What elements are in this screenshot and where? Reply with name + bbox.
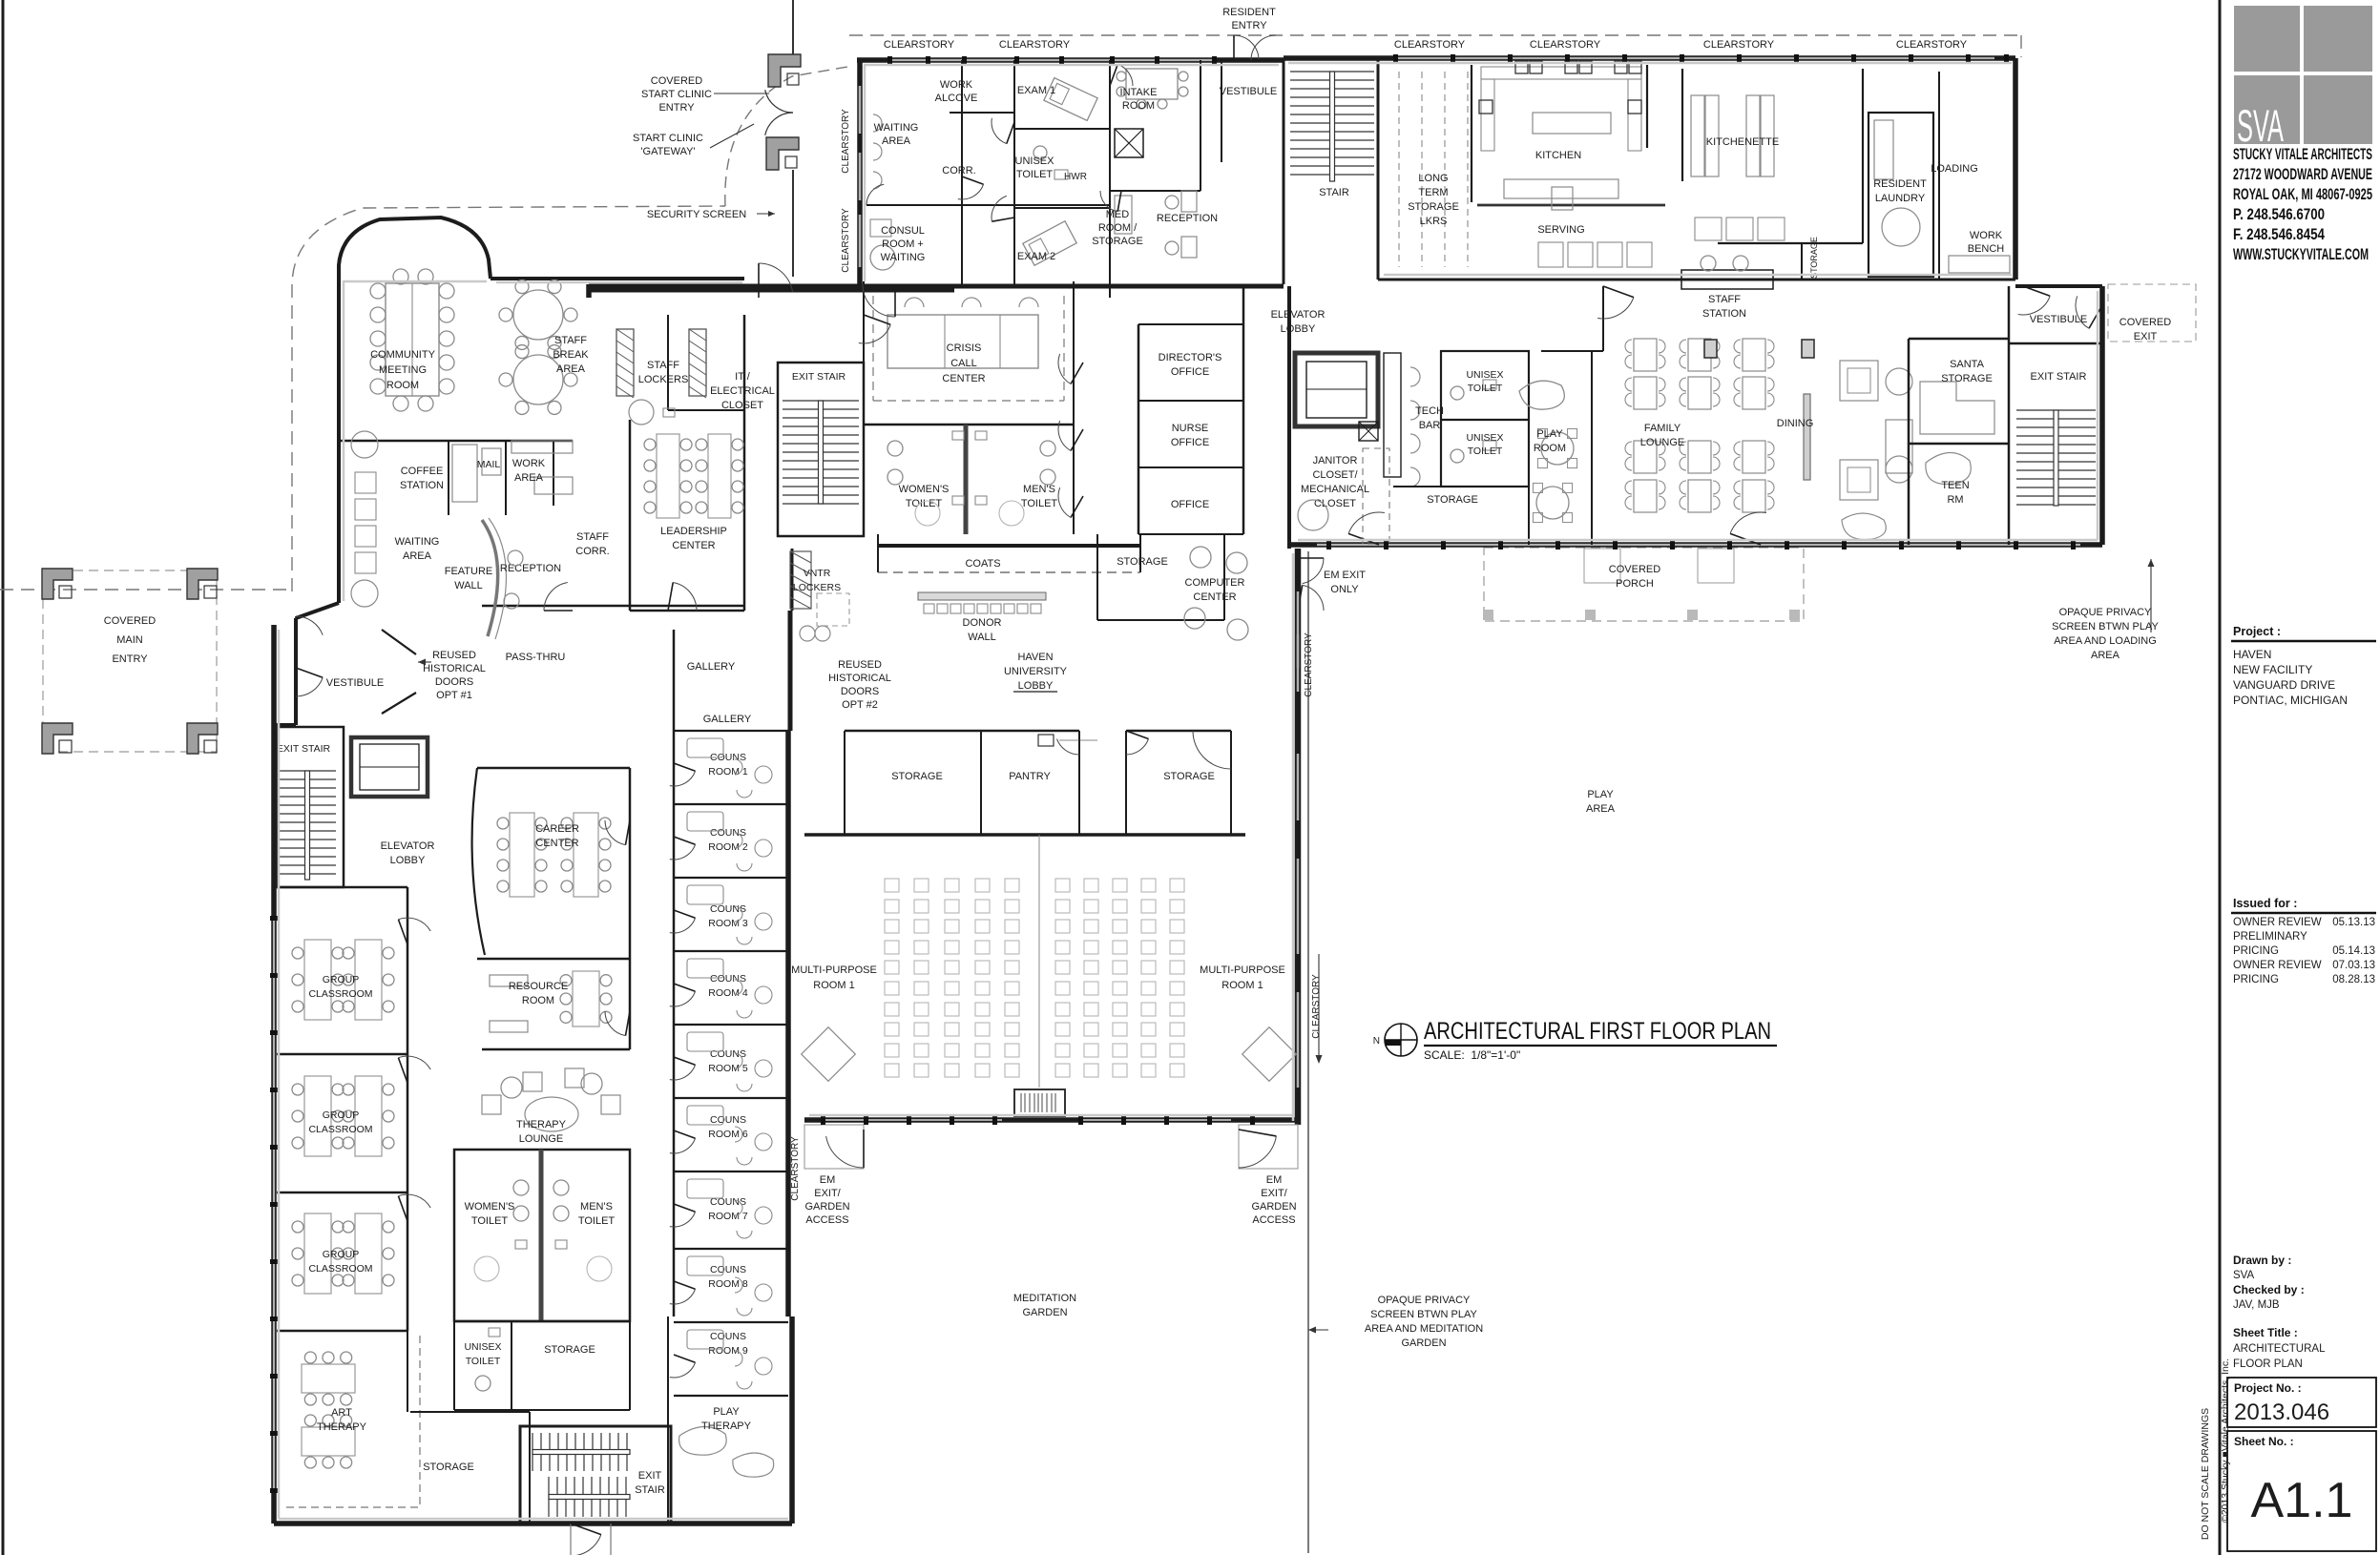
svg-text:STAFF: STAFF <box>554 335 587 346</box>
svg-text:JANITOR: JANITOR <box>1313 455 1358 466</box>
svg-text:CLEARSTORY: CLEARSTORY <box>1896 39 1968 51</box>
svg-text:REUSED: REUSED <box>432 650 476 661</box>
svg-text:EXIT/: EXIT/ <box>814 1188 841 1199</box>
svg-text:VNTR: VNTR <box>804 568 831 579</box>
svg-text:AREA: AREA <box>2091 650 2120 661</box>
svg-text:ROOM: ROOM <box>1534 443 1566 454</box>
svg-text:CLASSROOM: CLASSROOM <box>308 1124 372 1135</box>
svg-text:CLEARSTORY: CLEARSTORY <box>790 1136 801 1201</box>
svg-text:STATION: STATION <box>400 480 444 491</box>
svg-text:STORAGE: STORAGE <box>1427 494 1478 506</box>
svg-text:STORAGE: STORAGE <box>1092 236 1143 247</box>
svg-text:ALCOVE: ALCOVE <box>935 93 978 104</box>
svg-text:FAMILY: FAMILY <box>1644 423 1681 434</box>
svg-text:TEEN: TEEN <box>1941 480 1969 491</box>
svg-text:JAV, MJB: JAV, MJB <box>2233 1299 2280 1311</box>
svg-text:ROOM +: ROOM + <box>882 238 924 250</box>
svg-text:COUNS: COUNS <box>710 1114 746 1126</box>
svg-text:LKRS: LKRS <box>1420 216 1448 227</box>
svg-text:CONSUL: CONSUL <box>881 225 925 237</box>
svg-text:CLEARSTORY: CLEARSTORY <box>841 109 851 174</box>
svg-text:DOORS: DOORS <box>435 676 473 688</box>
svg-text:DO NOT SCALE DRAWINGS: DO NOT SCALE DRAWINGS <box>2200 1408 2211 1540</box>
svg-text:CLEARSTORY: CLEARSTORY <box>884 39 955 51</box>
svg-text:REUSED: REUSED <box>838 659 882 671</box>
svg-text:TOILET: TOILET <box>471 1215 509 1227</box>
svg-text:MULTI-PURPOSE: MULTI-PURPOSE <box>1200 964 1285 976</box>
svg-text:2013.046: 2013.046 <box>2234 1399 2329 1425</box>
svg-text:CLEARSTORY: CLEARSTORY <box>1530 39 1601 51</box>
svg-text:INTAKE: INTAKE <box>1120 87 1158 98</box>
svg-text:STORAGE: STORAGE <box>891 771 943 782</box>
svg-text:Sheet Title :: Sheet Title : <box>2233 1326 2298 1339</box>
svg-text:CLEARSTORY: CLEARSTORY <box>1311 974 1322 1039</box>
svg-text:COUNS: COUNS <box>710 1264 746 1275</box>
svg-text:P. 248.546.6700: P. 248.546.6700 <box>2233 206 2325 223</box>
svg-text:SCREEN BTWN PLAY: SCREEN BTWN PLAY <box>1370 1309 1477 1320</box>
svg-text:WOMEN'S: WOMEN'S <box>899 484 950 495</box>
svg-text:CENTER: CENTER <box>672 540 715 551</box>
svg-text:ONLY: ONLY <box>1330 584 1359 595</box>
svg-text:THERAPY: THERAPY <box>317 1421 367 1433</box>
svg-text:FLOOR PLAN: FLOOR PLAN <box>2233 1358 2303 1370</box>
svg-text:ELEVATOR: ELEVATOR <box>1271 309 1326 321</box>
svg-text:UNISEX: UNISEX <box>1466 432 1503 444</box>
svg-text:SERVING: SERVING <box>1537 224 1584 236</box>
svg-text:WORK: WORK <box>1970 230 2003 241</box>
svg-text:F. 248.546.8454: F. 248.546.8454 <box>2233 226 2326 243</box>
svg-text:07.03.13: 07.03.13 <box>2332 960 2375 971</box>
svg-text:LOBBY: LOBBY <box>390 855 426 866</box>
svg-text:Sheet No. :: Sheet No. : <box>2234 1435 2294 1448</box>
svg-text:CENTER: CENTER <box>942 373 985 384</box>
svg-text:PLAY: PLAY <box>1587 789 1614 800</box>
svg-text:WWW.STUCKYVITALE.COM: WWW.STUCKYVITALE.COM <box>2233 246 2369 263</box>
svg-text:CALL: CALL <box>950 358 977 369</box>
svg-text:ROOM: ROOM <box>386 380 419 391</box>
svg-text:OWNER REVIEW: OWNER REVIEW <box>2233 960 2322 971</box>
svg-text:DONOR: DONOR <box>963 617 1002 629</box>
svg-text:STAIR: STAIR <box>1319 187 1349 198</box>
svg-text:COFFEE: COFFEE <box>401 466 444 477</box>
svg-text:MEN'S: MEN'S <box>580 1201 613 1213</box>
svg-text:Issued for :: Issued for : <box>2233 897 2297 910</box>
svg-text:COUNS: COUNS <box>710 827 746 839</box>
svg-text:SANTA: SANTA <box>1950 359 1985 370</box>
svg-text:LOBBY: LOBBY <box>1018 680 1054 692</box>
svg-text:OPT #1: OPT #1 <box>436 690 472 701</box>
svg-text:PLAY: PLAY <box>1536 428 1563 440</box>
svg-text:VESTIBULE: VESTIBULE <box>2030 314 2088 325</box>
svg-text:PRICING: PRICING <box>2233 945 2279 957</box>
svg-text:ARCHITECTURAL FIRST FLOOR PLAN: ARCHITECTURAL FIRST FLOOR PLAN <box>1424 1018 1771 1045</box>
svg-text:OWNER REVIEW: OWNER REVIEW <box>2233 917 2322 928</box>
svg-text:TOILET: TOILET <box>466 1356 501 1367</box>
svg-text:HWR: HWR <box>1064 172 1087 182</box>
svg-text:CLOSET/: CLOSET/ <box>1312 469 1358 481</box>
svg-text:TECH: TECH <box>1415 405 1444 417</box>
svg-text:CLEARSTORY: CLEARSTORY <box>841 208 851 273</box>
svg-text:27172 WOODWARD AVENUE: 27172 WOODWARD AVENUE <box>2233 166 2372 183</box>
svg-text:OFFICE: OFFICE <box>1171 366 1209 378</box>
svg-text:ROOM /: ROOM / <box>1098 222 1138 234</box>
svg-text:RESIDENT: RESIDENT <box>1222 7 1276 18</box>
svg-text:CAREER: CAREER <box>535 823 579 835</box>
svg-text:ENTRY: ENTRY <box>658 102 695 114</box>
svg-text:PLAY: PLAY <box>713 1406 740 1418</box>
svg-text:STORAGE: STORAGE <box>1408 201 1459 213</box>
svg-text:VESTIBULE: VESTIBULE <box>1220 86 1278 97</box>
svg-text:LOCKERS: LOCKERS <box>793 582 841 593</box>
svg-text:ART: ART <box>331 1407 352 1419</box>
svg-text:HISTORICAL: HISTORICAL <box>828 673 891 684</box>
svg-text:CLEARSTORY: CLEARSTORY <box>1304 632 1314 697</box>
svg-text:COMPUTER: COMPUTER <box>1185 577 1245 589</box>
svg-text:ARCHITECTURAL: ARCHITECTURAL <box>2233 1343 2326 1355</box>
svg-text:PRICING: PRICING <box>2233 974 2279 985</box>
svg-text:EXIT STAIR: EXIT STAIR <box>792 371 846 383</box>
svg-text:STORAGE: STORAGE <box>1117 556 1168 568</box>
svg-text:LOUNGE: LOUNGE <box>519 1133 563 1145</box>
svg-text:PRELIMINARY: PRELIMINARY <box>2233 931 2307 943</box>
svg-text:AREA: AREA <box>1586 803 1616 815</box>
svg-text:GROUP: GROUP <box>323 974 360 985</box>
svg-text:MEETING: MEETING <box>379 364 427 376</box>
svg-text:©2013 Stucky ■Vitale Architect: ©2013 Stucky ■Vitale Architects, Inc. <box>2220 1358 2231 1523</box>
svg-text:START CLINIC: START CLINIC <box>641 89 712 100</box>
svg-text:COVERED: COVERED <box>2119 317 2171 328</box>
svg-text:COMMUNITY: COMMUNITY <box>370 349 435 361</box>
svg-text:ROOM 7: ROOM 7 <box>708 1211 748 1222</box>
svg-text:STAFF: STAFF <box>647 360 679 371</box>
svg-text:EXAM 2: EXAM 2 <box>1017 251 1055 262</box>
svg-text:STORAGE: STORAGE <box>1809 237 1819 279</box>
svg-text:GARDEN: GARDEN <box>1022 1307 1067 1318</box>
svg-text:CLASSROOM: CLASSROOM <box>308 1263 372 1275</box>
svg-text:AREA: AREA <box>403 550 432 562</box>
svg-text:STAFF: STAFF <box>1708 294 1741 305</box>
svg-text:LAUNDRY: LAUNDRY <box>1875 193 1926 204</box>
svg-text:BENCH: BENCH <box>1968 243 2005 255</box>
svg-text:RECEPTION: RECEPTION <box>500 563 561 574</box>
svg-text:STUCKY VITALE ARCHITECTS: STUCKY VITALE ARCHITECTS <box>2233 146 2372 163</box>
svg-text:NEW FACILITY: NEW FACILITY <box>2233 663 2312 676</box>
svg-text:COVERED: COVERED <box>104 615 156 627</box>
svg-text:UNISEX: UNISEX <box>464 1341 501 1353</box>
svg-text:MECHANICAL: MECHANICAL <box>1301 484 1369 495</box>
svg-text:CLEARSTORY: CLEARSTORY <box>999 39 1071 51</box>
svg-text:HAVEN: HAVEN <box>2233 648 2271 661</box>
svg-text:MEDITATION: MEDITATION <box>1013 1293 1076 1304</box>
svg-text:STORAGE: STORAGE <box>1941 373 1993 384</box>
svg-text:WORK: WORK <box>940 79 973 91</box>
svg-text:WALL: WALL <box>968 632 996 643</box>
svg-text:CRISIS: CRISIS <box>947 342 982 354</box>
svg-text:VANGUARD DRIVE: VANGUARD DRIVE <box>2233 678 2335 692</box>
svg-text:GROUP: GROUP <box>323 1109 360 1121</box>
svg-text:TOILET: TOILET <box>906 498 943 509</box>
svg-text:BREAK: BREAK <box>553 349 589 361</box>
svg-text:EXIT: EXIT <box>2134 331 2158 342</box>
svg-text:DOORS: DOORS <box>841 686 879 697</box>
svg-text:EXIT: EXIT <box>638 1470 662 1482</box>
svg-text:Checked by :: Checked by : <box>2233 1283 2305 1296</box>
svg-text:OPT #2: OPT #2 <box>842 699 878 711</box>
svg-text:STORAGE: STORAGE <box>1163 771 1215 782</box>
svg-text:TOILET: TOILET <box>1016 169 1054 180</box>
svg-text:05.14.13: 05.14.13 <box>2332 945 2375 957</box>
svg-text:KITCHEN: KITCHEN <box>1535 150 1581 161</box>
svg-text:UNISEX: UNISEX <box>1015 155 1055 167</box>
svg-text:PONTIAC, MICHIGAN: PONTIAC, MICHIGAN <box>2233 694 2348 707</box>
svg-text:STORAGE: STORAGE <box>423 1462 474 1473</box>
svg-text:ENTRY: ENTRY <box>1231 20 1267 31</box>
svg-text:LOBBY: LOBBY <box>1281 323 1316 335</box>
svg-text:SCREEN BTWN PLAY: SCREEN BTWN PLAY <box>2052 621 2159 632</box>
svg-text:WORK: WORK <box>512 458 546 469</box>
svg-text:SVA: SVA <box>2237 100 2284 151</box>
svg-text:OFFICE: OFFICE <box>1171 437 1209 448</box>
svg-text:NURSE: NURSE <box>1172 423 1209 434</box>
svg-text:MAIL: MAIL <box>477 459 501 470</box>
svg-text:LONG: LONG <box>1418 173 1448 184</box>
svg-text:SCALE: 1/8"=1'-0": SCALE: 1/8"=1'-0" <box>1424 1048 1520 1062</box>
svg-text:A1.1: A1.1 <box>2251 1473 2353 1528</box>
svg-text:TOILET: TOILET <box>1468 383 1503 394</box>
svg-text:ACCESS: ACCESS <box>805 1214 848 1226</box>
svg-text:ELECTRICAL: ELECTRICAL <box>710 385 775 397</box>
svg-text:WAITING: WAITING <box>395 536 440 548</box>
svg-text:AREA AND LOADING: AREA AND LOADING <box>2054 635 2157 647</box>
svg-text:COATS: COATS <box>965 558 1000 570</box>
svg-text:LOCKERS: LOCKERS <box>638 374 689 385</box>
svg-text:THERAPY: THERAPY <box>516 1119 567 1130</box>
svg-text:TOILET: TOILET <box>1021 498 1058 509</box>
svg-text:SECURITY SCREEN: SECURITY SCREEN <box>647 209 746 220</box>
svg-text:AREA AND MEDITATION: AREA AND MEDITATION <box>1365 1323 1483 1335</box>
svg-text:WAITING: WAITING <box>881 252 926 263</box>
svg-text:OPAQUE PRIVACY: OPAQUE PRIVACY <box>1378 1295 1471 1306</box>
svg-text:COVERED: COVERED <box>1609 564 1660 575</box>
svg-text:EXIT/: EXIT/ <box>1261 1188 1287 1199</box>
svg-text:STORAGE: STORAGE <box>544 1344 595 1356</box>
svg-text:ENTRY: ENTRY <box>112 653 148 665</box>
svg-text:UNIVERSITY: UNIVERSITY <box>1004 666 1068 677</box>
svg-text:BAR: BAR <box>1419 420 1441 431</box>
svg-text:RESIDENT: RESIDENT <box>1873 178 1927 190</box>
svg-text:'GATEWAY': 'GATEWAY' <box>640 146 695 157</box>
svg-text:COUNS: COUNS <box>710 1331 746 1342</box>
svg-text:WALL: WALL <box>454 580 483 591</box>
svg-text:PANTRY: PANTRY <box>1009 771 1051 782</box>
svg-text:START CLINIC: START CLINIC <box>633 133 703 144</box>
svg-text:EM: EM <box>1266 1174 1283 1186</box>
svg-text:FEATURE: FEATURE <box>445 566 493 577</box>
svg-text:RESOURCE: RESOURCE <box>509 981 568 992</box>
svg-text:EXIT STAIR: EXIT STAIR <box>277 743 331 755</box>
svg-text:DINING: DINING <box>1777 418 1814 429</box>
svg-text:HAVEN: HAVEN <box>1017 652 1053 663</box>
svg-text:LOADING: LOADING <box>1931 163 1978 175</box>
svg-text:AREA: AREA <box>514 472 544 484</box>
svg-text:ROOM 3: ROOM 3 <box>708 918 748 929</box>
svg-text:WAITING: WAITING <box>874 122 919 134</box>
svg-text:RECEPTION: RECEPTION <box>1157 213 1218 224</box>
svg-text:PASS-THRU: PASS-THRU <box>506 652 566 663</box>
svg-text:AREA: AREA <box>882 135 911 147</box>
svg-text:GALLERY: GALLERY <box>703 714 752 725</box>
svg-text:ROOM 1: ROOM 1 <box>813 980 854 991</box>
svg-text:Project :: Project : <box>2233 625 2281 638</box>
svg-text:CLASSROOM: CLASSROOM <box>308 988 372 1000</box>
svg-text:UNISEX: UNISEX <box>1466 369 1503 381</box>
svg-text:EM: EM <box>820 1174 836 1186</box>
svg-text:EXAM 1: EXAM 1 <box>1017 85 1055 96</box>
svg-text:TOILET: TOILET <box>1468 446 1503 457</box>
svg-text:ACCESS: ACCESS <box>1252 1214 1295 1226</box>
svg-text:THERAPY: THERAPY <box>701 1420 752 1432</box>
svg-text:PORCH: PORCH <box>1616 578 1654 590</box>
svg-text:GARDEN: GARDEN <box>804 1201 849 1213</box>
svg-text:CLOSET: CLOSET <box>721 400 763 411</box>
svg-text:MAIN: MAIN <box>116 634 143 646</box>
svg-text:WOMEN'S: WOMEN'S <box>465 1201 515 1213</box>
svg-text:08.28.13: 08.28.13 <box>2332 974 2375 985</box>
svg-text:DIRECTOR'S: DIRECTOR'S <box>1159 352 1222 363</box>
svg-text:GARDEN: GARDEN <box>1401 1337 1446 1349</box>
svg-text:STATION: STATION <box>1702 308 1746 320</box>
svg-text:RM: RM <box>1947 494 1963 506</box>
svg-text:ROOM: ROOM <box>1122 100 1155 112</box>
svg-text:IT /: IT / <box>735 371 751 383</box>
svg-text:GROUP: GROUP <box>323 1249 360 1260</box>
svg-text:GALLERY: GALLERY <box>687 661 736 673</box>
svg-text:EXIT STAIR: EXIT STAIR <box>2031 371 2087 383</box>
svg-text:ROOM: ROOM <box>522 995 554 1006</box>
svg-text:TOILET: TOILET <box>578 1215 616 1227</box>
svg-text:05.13.13: 05.13.13 <box>2332 917 2375 928</box>
svg-text:MULTI-PURPOSE: MULTI-PURPOSE <box>791 964 877 976</box>
svg-text:ROOM 1: ROOM 1 <box>1221 980 1263 991</box>
svg-text:VESTIBULE: VESTIBULE <box>326 677 385 689</box>
svg-text:CENTER: CENTER <box>1193 591 1236 603</box>
svg-text:STAIR: STAIR <box>635 1484 665 1496</box>
svg-text:OFFICE: OFFICE <box>1171 499 1209 510</box>
svg-text:Drawn by :: Drawn by : <box>2233 1254 2291 1267</box>
svg-text:COVERED: COVERED <box>651 75 702 87</box>
svg-text:SVA: SVA <box>2233 1270 2254 1281</box>
svg-text:TERM: TERM <box>1418 187 1448 198</box>
svg-text:EM EXIT: EM EXIT <box>1324 570 1366 581</box>
svg-text:LOUNGE: LOUNGE <box>1640 437 1684 448</box>
svg-text:KITCHENETTE: KITCHENETTE <box>1706 136 1779 148</box>
svg-text:OPAQUE PRIVACY: OPAQUE PRIVACY <box>2059 607 2152 618</box>
svg-text:ELEVATOR: ELEVATOR <box>381 840 435 852</box>
svg-text:MEN'S: MEN'S <box>1023 484 1055 495</box>
svg-text:AREA: AREA <box>556 363 586 375</box>
svg-text:N: N <box>1373 1036 1380 1047</box>
svg-text:GARDEN: GARDEN <box>1251 1201 1296 1213</box>
svg-text:CORR.: CORR. <box>942 165 975 176</box>
svg-text:CLEARSTORY: CLEARSTORY <box>1703 39 1775 51</box>
svg-text:Project No. :: Project No. : <box>2234 1381 2302 1395</box>
svg-text:ROYAL OAK, MI 48067-0925: ROYAL OAK, MI 48067-0925 <box>2233 186 2372 203</box>
svg-text:CENTER: CENTER <box>535 838 578 849</box>
svg-text:CLEARSTORY: CLEARSTORY <box>1394 39 1466 51</box>
svg-text:STAFF: STAFF <box>576 531 609 543</box>
svg-text:LEADERSHIP: LEADERSHIP <box>660 526 727 537</box>
svg-text:CORR.: CORR. <box>575 546 609 557</box>
svg-text:COUNS: COUNS <box>710 1048 746 1060</box>
svg-text:HISTORICAL: HISTORICAL <box>423 663 486 674</box>
svg-text:CLOSET: CLOSET <box>1314 498 1356 509</box>
